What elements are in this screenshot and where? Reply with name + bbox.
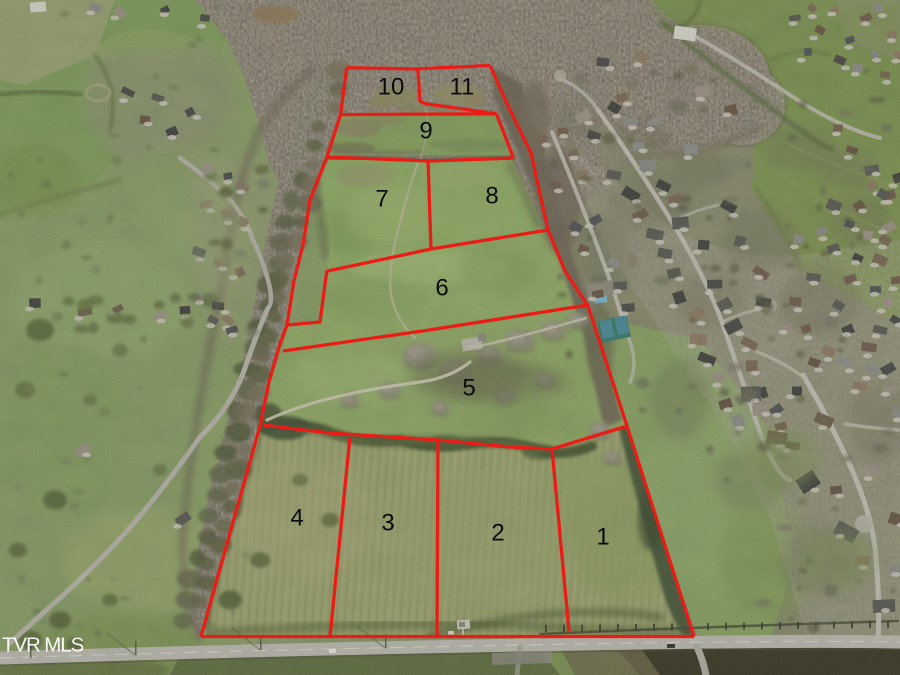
svg-text:10: 10 <box>378 74 405 101</box>
svg-text:8: 8 <box>485 183 498 210</box>
svg-text:1: 1 <box>596 524 609 551</box>
svg-text:TVR MLS: TVR MLS <box>2 634 84 657</box>
svg-text:6: 6 <box>435 275 448 302</box>
svg-text:3: 3 <box>381 510 394 537</box>
svg-text:4: 4 <box>290 505 303 532</box>
svg-text:9: 9 <box>419 118 432 145</box>
svg-text:5: 5 <box>462 375 475 402</box>
svg-text:11: 11 <box>450 74 475 101</box>
svg-text:2: 2 <box>491 520 504 547</box>
svg-text:7: 7 <box>375 186 388 213</box>
